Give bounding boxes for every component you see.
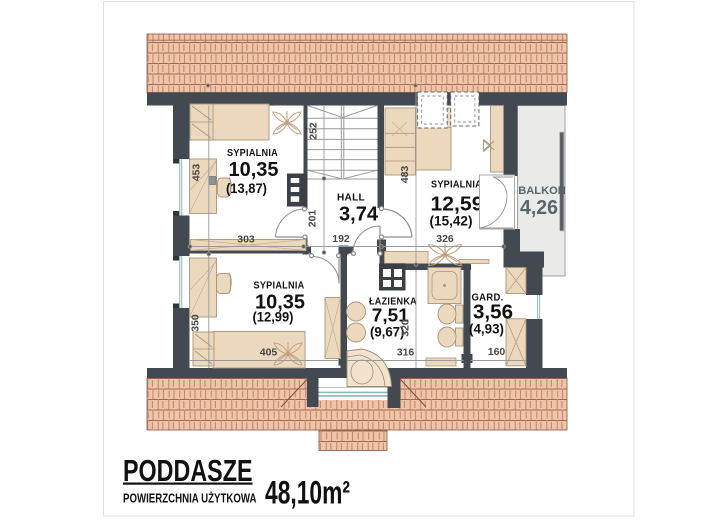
svg-text:(15,42): (15,42)	[430, 214, 473, 229]
svg-text:316: 316	[397, 347, 415, 359]
svg-text:201: 201	[307, 210, 319, 228]
svg-text:303: 303	[237, 234, 255, 246]
svg-text:3,56: 3,56	[473, 301, 513, 324]
svg-text:160: 160	[488, 346, 506, 358]
svg-text:3,74: 3,74	[339, 203, 379, 226]
svg-text:(12,99): (12,99)	[253, 310, 294, 325]
svg-text:192: 192	[332, 233, 350, 245]
svg-text:252: 252	[308, 122, 320, 140]
svg-text:4,26: 4,26	[520, 196, 558, 219]
svg-text:(13,87): (13,87)	[226, 181, 267, 196]
svg-text:405: 405	[260, 347, 278, 359]
svg-text:48,10m²: 48,10m²	[265, 475, 350, 511]
svg-text:10,35: 10,35	[229, 158, 279, 181]
svg-text:(4,93): (4,93)	[469, 322, 504, 337]
svg-text:483: 483	[399, 166, 411, 184]
svg-text:12,59: 12,59	[431, 193, 484, 216]
svg-text:453: 453	[191, 164, 203, 182]
svg-text:320: 320	[400, 319, 412, 337]
svg-text:POWIERZCHNIA UŻYTKOWA: POWIERZCHNIA UŻYTKOWA	[123, 491, 257, 506]
svg-text:350: 350	[190, 314, 202, 332]
svg-text:326: 326	[436, 233, 454, 245]
svg-text:SYPIALNIA: SYPIALNIA	[431, 179, 482, 191]
